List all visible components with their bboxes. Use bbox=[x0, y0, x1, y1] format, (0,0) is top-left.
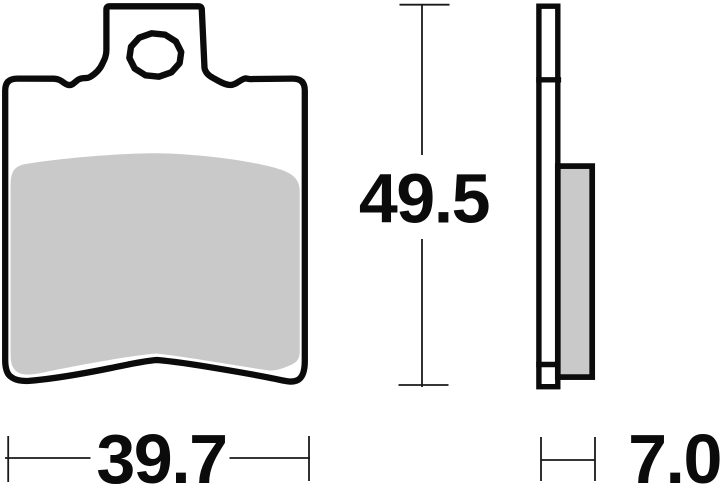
svg-text:49.5: 49.5 bbox=[359, 160, 489, 238]
svg-text:39.7: 39.7 bbox=[96, 420, 226, 484]
svg-text:7.0: 7.0 bbox=[628, 420, 720, 484]
